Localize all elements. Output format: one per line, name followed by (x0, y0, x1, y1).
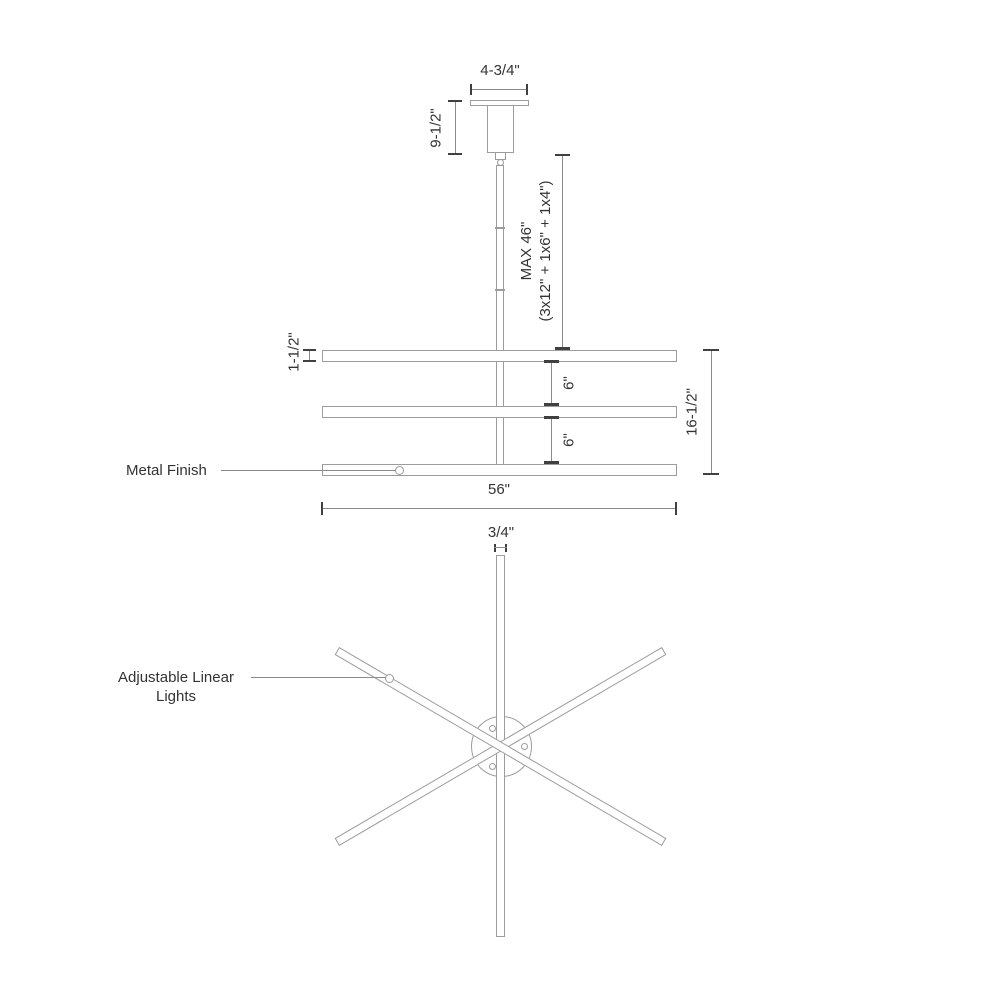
canopy-screw-hole-bottom (489, 763, 496, 770)
dim-canopy-height-line (455, 101, 456, 155)
dim-gap-lower-line (551, 418, 552, 464)
dim-fixture-width-text: 56" (419, 481, 579, 498)
light-bar-top (322, 350, 677, 362)
dim-stack-height-line (711, 350, 712, 475)
dim-plan-bar-width-tick-right (505, 544, 507, 552)
dim-fixture-width-line (322, 508, 677, 509)
dim-canopy-height-text: 9-1/2" (428, 108, 445, 148)
adjustable-lights-label: Adjustable Linear Lights (110, 668, 242, 706)
dim-canopy-width-text: 4-3/4" (420, 62, 580, 79)
dim-plan-bar-width-tick-left (494, 544, 496, 552)
dim-gap-lower-text: 6" (561, 433, 578, 447)
dim-gap-upper-tick-top (544, 360, 559, 363)
dim-fixture-width-tick-right (675, 502, 677, 515)
dim-stack-height-text: 16-1/2" (684, 388, 701, 436)
dim-rod-max-tick-top (555, 154, 570, 156)
adjustable-lights-leader-line (251, 677, 386, 678)
downrod-coupler-2 (495, 289, 505, 291)
spec-sheet-drawing: 4-3/4" 9-1/2" MAX 46" (3x12" + 1x6" + 1x… (0, 0, 1000, 1000)
dim-bar-thickness-tick-bottom (303, 360, 316, 362)
dim-bar-thickness-tick-top (303, 349, 316, 351)
light-bar-middle (322, 406, 677, 418)
dim-rod-max-line (562, 155, 563, 349)
downrod (496, 165, 504, 465)
dim-gap-upper-tick-bottom (544, 403, 559, 406)
dim-rod-max-text-line2: (3x12" + 1x6" + 1x4") (536, 180, 555, 321)
dim-canopy-width-tick-right (526, 84, 528, 95)
dim-gap-lower-tick-top (544, 416, 559, 419)
dim-gap-upper-text: 6" (561, 376, 578, 390)
dim-rod-max-tick-bottom (555, 347, 570, 350)
dim-fixture-width-tick-left (321, 502, 323, 515)
adjustable-lights-target-circle (385, 674, 394, 683)
dim-canopy-width-tick-left (470, 84, 472, 95)
metal-finish-label: Metal Finish (126, 462, 207, 479)
dim-gap-lower-tick-bottom (544, 461, 559, 464)
dim-stack-height-tick-top (703, 349, 719, 351)
dim-bar-thickness-text: 1-1/2" (286, 332, 303, 372)
dim-gap-upper-line (551, 362, 552, 406)
dim-stack-height-tick-bottom (703, 473, 719, 475)
dim-plan-bar-width-line (494, 547, 507, 548)
dim-plan-bar-width-text: 3/4" (441, 524, 561, 541)
dim-canopy-height-tick-bottom (448, 153, 462, 155)
dim-canopy-height-tick-top (448, 100, 462, 102)
downrod-coupler-1 (495, 227, 505, 229)
dim-rod-max-text: MAX 46" (3x12" + 1x6" + 1x4") (517, 180, 555, 321)
canopy-screw-hole-top (489, 725, 496, 732)
canopy-body (487, 105, 514, 153)
metal-finish-leader-line (221, 470, 396, 471)
dim-rod-max-text-line1: MAX 46" (517, 180, 536, 321)
dim-canopy-width-line (471, 89, 528, 90)
metal-finish-target-circle (395, 466, 404, 475)
canopy-screw-hole-right (521, 743, 528, 750)
